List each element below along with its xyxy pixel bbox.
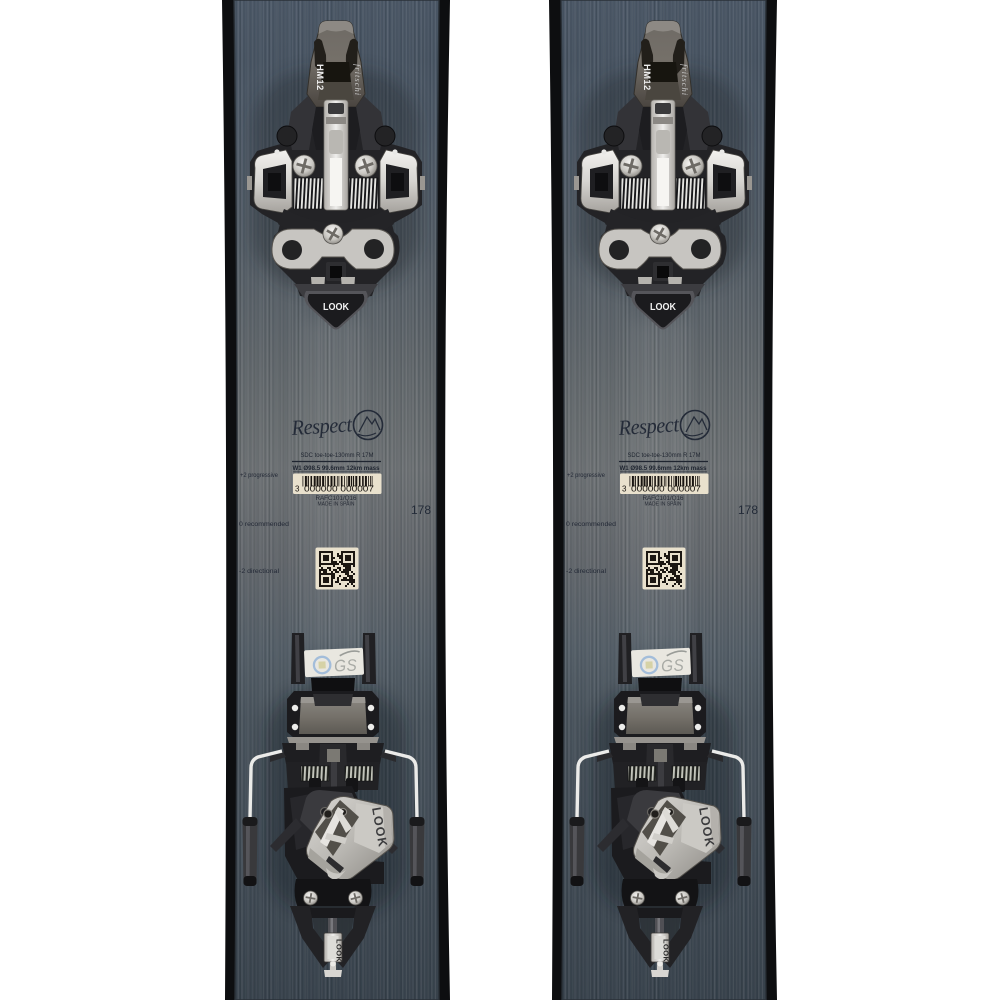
svg-text:LOOK: LOOK — [335, 939, 344, 962]
svg-text:HM12: HM12 — [314, 64, 325, 91]
svg-text:W1 Ø98.5 99.6mm 12km ma: W1 Ø98.5 99.6mm 12km mass — [293, 465, 380, 472]
svg-text:fritschi: fritschi — [353, 64, 363, 96]
svg-text:GS: GS — [334, 657, 358, 676]
svg-text:SDC toe-toe-130mm R 17M: SDC toe-toe-130mm R 17M — [301, 452, 374, 459]
svg-text:178: 178 — [411, 503, 431, 517]
svg-text:Respect: Respect — [290, 412, 354, 440]
svg-text:LOOK: LOOK — [323, 302, 350, 313]
svg-text:MADE IN SPAIN: MADE IN SPAIN — [318, 502, 355, 508]
svg-text:+2 progressive: +2 progressive — [240, 473, 279, 479]
svg-text:0 recommended: 0 recommended — [239, 522, 289, 528]
svg-text:3: 3 — [295, 485, 300, 494]
svg-text:000000 000007: 000000 000007 — [304, 485, 375, 494]
svg-text:-2 directional: -2 directional — [239, 569, 279, 575]
